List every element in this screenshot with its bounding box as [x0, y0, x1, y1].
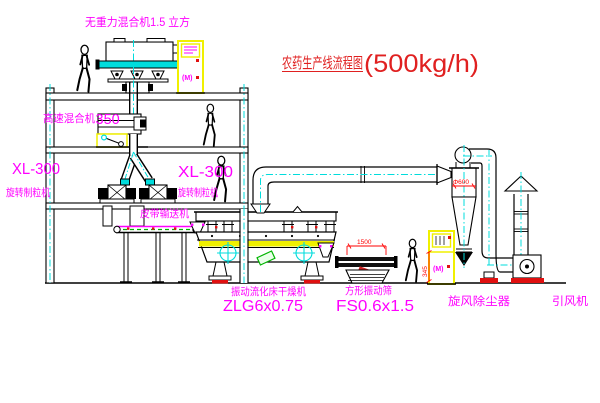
dim-screen-length: 1500: [357, 239, 372, 246]
control-cabinet-1: (M): [176, 41, 205, 93]
worker-top-platform: [77, 45, 89, 91]
cabinet2-display: (M): [433, 266, 444, 273]
fluid-bed-dryer: [190, 207, 338, 284]
granulator-left: [98, 185, 136, 203]
induced-draft-fan: [511, 255, 544, 283]
label-granulator-model-left: XL-300: [12, 161, 60, 178]
label-cyclone: 旋风除尘器: [448, 294, 511, 308]
granulator-right: [139, 185, 177, 203]
label-belt-conveyor: 皮带输送机: [140, 207, 189, 220]
label-granulator-model-mid: XL-300: [178, 164, 233, 181]
label-granulator-name-mid: 旋转制粒机: [178, 186, 218, 199]
title-name: 农药生产线流程图: [282, 55, 363, 72]
label-gravity-mixer: 无重力混合机1.5 立方: [85, 15, 190, 29]
dryer-legs: [209, 262, 323, 280]
label-screen-name: 方形振动筛: [345, 284, 392, 297]
label-hs-mixer: 高速混合机: [43, 111, 95, 125]
page-title: 农药生产线流程图 (500kg/h): [282, 50, 479, 78]
control-cabinet-2: (M): [427, 231, 456, 284]
column-over-dryer: [240, 209, 248, 283]
cabinet1-display: (M): [182, 75, 193, 82]
worker-middle-floor: [204, 104, 215, 146]
exhaust-duct: [251, 164, 451, 213]
cad-drawing: (M): [0, 0, 600, 403]
pesticide-production-line-diagram: (M): [0, 0, 600, 403]
label-fan: 引风机: [552, 294, 589, 308]
dim-screen-height: 345: [422, 266, 429, 277]
label-dryer-model: ZLG6x0.75: [223, 298, 303, 315]
dryer-top-ports: [206, 221, 336, 232]
dim-cyclone-diameter: Φ600: [453, 179, 469, 186]
label-hs-mixer-size: 350: [96, 112, 120, 128]
label-dryer-name: 振动流化床干燥机: [231, 285, 306, 298]
label-screen-model: FS0.6x1.5: [336, 298, 414, 315]
label-granulator-name-left: 旋转制粒机: [6, 186, 50, 199]
worker-ground: [406, 239, 417, 281]
discharge-funnels: [111, 71, 164, 79]
title-capacity: (500kg/h): [364, 50, 479, 78]
